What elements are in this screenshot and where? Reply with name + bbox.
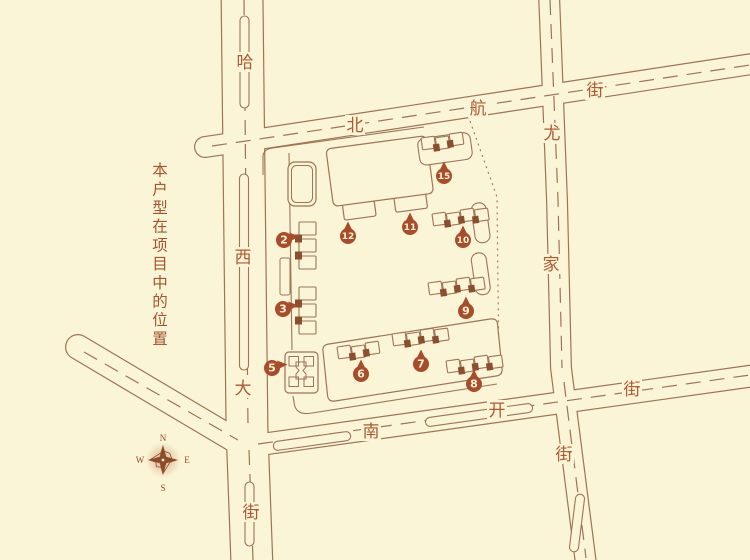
site-map: 哈西大街北航街尤家街南开街235678910111215NWES 本户型在项目中… <box>0 0 750 560</box>
median-island <box>240 174 249 370</box>
unit-core <box>468 285 475 293</box>
marker-number: 6 <box>357 368 365 381</box>
compass-label-west: W <box>136 455 145 465</box>
marker-number: 2 <box>280 234 288 247</box>
street-label-尤: 尤 <box>544 124 561 144</box>
marker-number: 3 <box>279 303 287 316</box>
unit-core <box>486 363 493 371</box>
unit-core <box>447 140 454 148</box>
marker-number: 11 <box>404 223 417 233</box>
marker-number: 10 <box>457 236 470 246</box>
unit-core <box>458 367 465 375</box>
unit-core <box>454 285 461 293</box>
unit <box>299 287 316 300</box>
unit-core <box>444 220 451 228</box>
unit-core <box>295 317 302 325</box>
street-label-西: 西 <box>235 248 252 268</box>
unit <box>299 222 316 235</box>
unit-core <box>472 363 479 371</box>
street-label-街: 街 <box>243 503 260 523</box>
marker-number: 15 <box>438 172 451 182</box>
unit-core <box>295 252 302 260</box>
unit-core <box>458 216 465 224</box>
street-label-街: 街 <box>624 380 641 400</box>
marker-number: 12 <box>342 232 355 242</box>
street-label-街: 街 <box>556 445 573 465</box>
marker-number: 8 <box>470 378 478 391</box>
street-label-家: 家 <box>543 255 560 275</box>
unit-core <box>432 336 439 344</box>
unit-core <box>433 144 440 152</box>
compass-center <box>162 459 165 462</box>
street-label-北: 北 <box>347 116 364 136</box>
unit-core <box>472 216 479 224</box>
building-footprint-5 <box>285 352 318 393</box>
unit-core <box>349 353 356 361</box>
unit-core <box>418 336 425 344</box>
building-annex <box>280 258 290 295</box>
unit-core <box>404 340 411 348</box>
location-caption: 本户型在项目中的位置 <box>148 162 170 349</box>
street-label-大: 大 <box>235 379 252 399</box>
unit-core <box>363 349 370 357</box>
street-label-航: 航 <box>470 99 487 119</box>
site-map-canvas: 哈西大街北航街尤家街南开街235678910111215NWES <box>0 0 750 560</box>
street-label-街: 街 <box>587 81 604 101</box>
compass-label-east: E <box>184 455 190 465</box>
marker-number: 7 <box>417 358 425 371</box>
compass-label-south: S <box>160 483 165 493</box>
marker-number: 9 <box>462 305 470 318</box>
compass-label-north: N <box>160 433 167 443</box>
street-label-南: 南 <box>363 422 380 442</box>
marker-number: 5 <box>268 362 276 375</box>
street-label-哈: 哈 <box>237 53 254 73</box>
unit-core <box>440 289 447 297</box>
street-label-开: 开 <box>489 401 506 421</box>
